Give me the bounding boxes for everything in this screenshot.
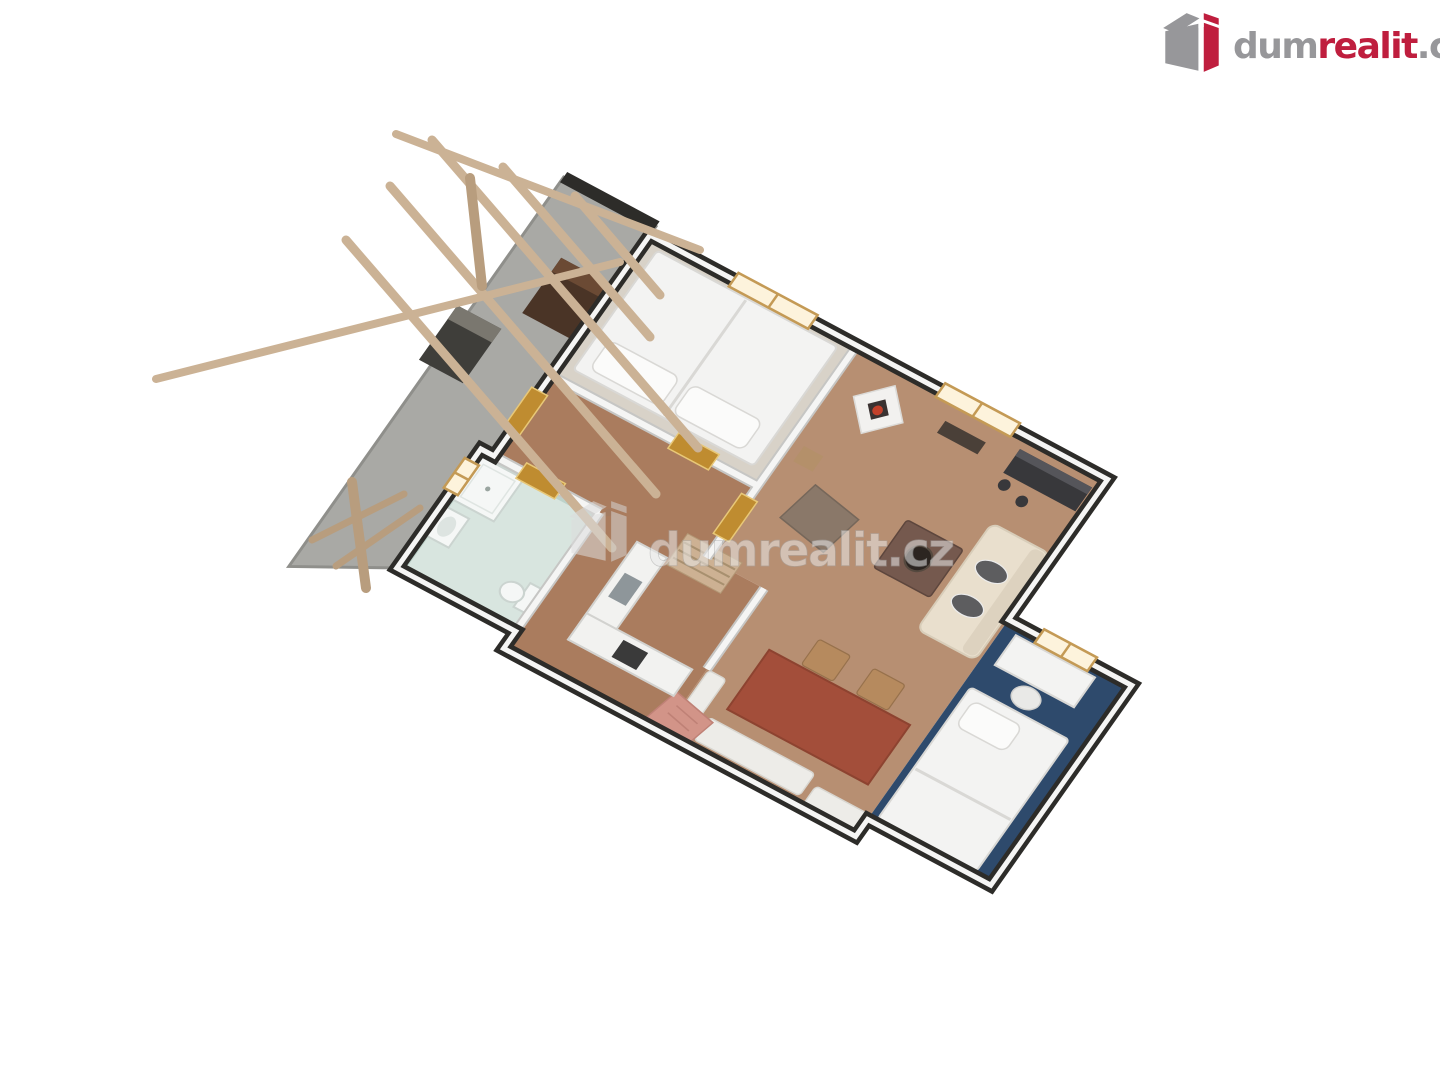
brand-logo-text: dumrealit.cz [1233,21,1440,65]
brand-building-icon [1163,12,1221,74]
brand-logo: dumrealit.cz [1163,12,1440,74]
screenshot-canvas: dumrealit.cz dumrealit.cz [0,0,1440,1080]
brand-part-cz: .cz [1417,26,1440,67]
floor-plan-render: dumrealit.cz [0,0,1440,1080]
brand-part-realit: realit [1317,26,1416,67]
brand-part-dum: dum [1233,26,1317,67]
watermark-text: dumrealit.cz [648,523,954,577]
